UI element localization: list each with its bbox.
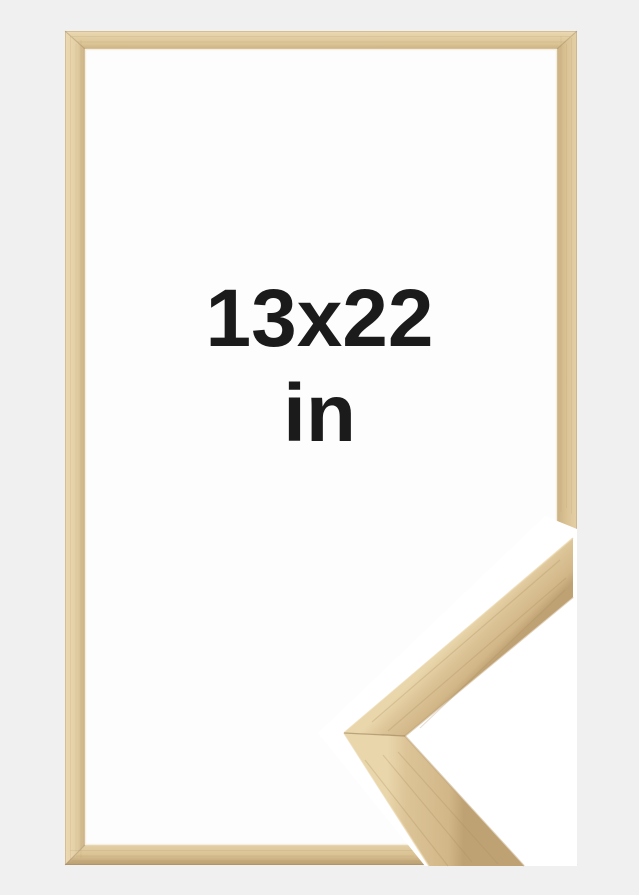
size-unit-text: in (0, 366, 639, 461)
frame-top-bar (65, 31, 577, 49)
product-photo: 13x22 in (0, 0, 639, 895)
frame-size-label: 13x22 in (0, 271, 639, 461)
size-dimensions-text: 13x22 (0, 271, 639, 366)
